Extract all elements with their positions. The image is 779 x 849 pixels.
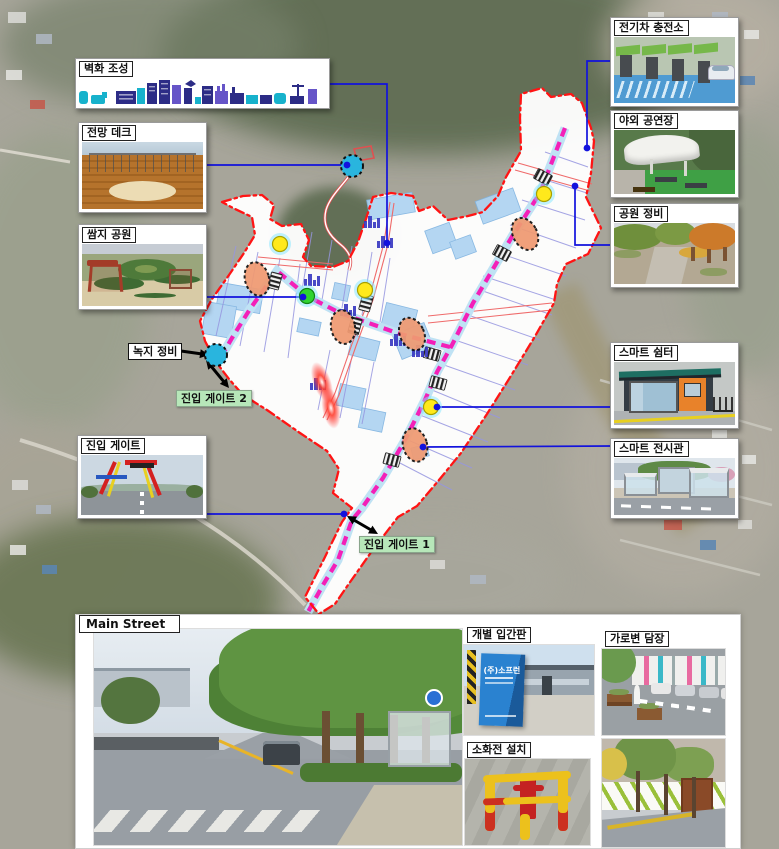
pocket-park-photo [82,244,203,306]
shape [616,81,694,98]
shape [140,492,145,514]
entry-gate-callout: 진입 게이트 [77,435,207,519]
connector-dot [384,240,391,247]
shape [96,475,128,479]
shape [650,159,653,173]
shape [467,650,476,704]
smart-shelter-title: 스마트 쉼터 [614,345,678,361]
connector-dot [341,511,348,518]
shape [263,741,300,765]
bottom-gallery-panel: Main Street 개별 입간판 [75,614,741,849]
connector-dot [344,162,351,169]
shape [93,810,331,832]
shape [629,381,679,413]
connector-dot [572,183,579,190]
shape [135,265,157,272]
deck-callout: 전망 데크 [78,122,207,213]
shape [558,776,568,831]
shape [485,677,514,679]
shape [513,785,544,791]
shape [601,748,627,780]
shape [689,223,735,250]
shape [632,656,725,685]
shape [614,170,645,194]
shape [322,711,329,763]
shape [624,473,657,496]
shape [87,260,118,266]
shape [684,383,701,396]
shape [82,244,203,254]
shape [614,250,641,259]
shape [130,463,154,468]
main-street-title: Main Street [79,615,180,633]
shape [485,715,516,717]
cyan-area-marker [205,344,227,366]
shape [713,397,732,412]
shape [388,711,451,767]
street-fence-photo-1 [601,648,726,736]
hydrant-photo [464,758,591,846]
deck-title: 전망 데크 [82,125,136,141]
connector-dot [434,404,441,411]
shape [634,685,640,704]
connector-line-smart-hall [423,446,612,447]
connector-dot [420,444,427,451]
signboard-title: 개별 입간판 [467,627,531,643]
signboard-text: (주)소프런 [484,665,521,676]
mural-title: 벽화 조성 [79,61,133,77]
outdoor-stage-callout: 야외 공연장 [610,110,739,198]
pocket-park-title: 쌈지 공원 [82,227,136,243]
shape [689,468,729,498]
smart-hall-photo [614,458,735,515]
yellow-point-marker [358,283,373,298]
street-fence-title: 가로변 담장 [605,631,669,647]
shape [109,181,177,201]
connector-dot [300,294,307,301]
mural-callout: 벽화 조성 [75,58,330,109]
main-street-photo [93,628,463,846]
smart-shelter-callout: 스마트 쉼터 [610,342,739,429]
ev-charger-title: 전기차 충전소 [614,20,689,36]
entry-gate-title: 진입 게이트 [81,438,145,454]
yellow-point-marker [537,187,552,202]
shape [681,778,713,815]
smart-hall-title: 스마트 전시관 [614,441,689,457]
park-maint-callout: 공원 정비 [610,203,739,288]
deck-photo [82,142,203,209]
yellow-point-marker [273,237,288,252]
shape [636,771,640,812]
green-maintenance-label: 녹지 정비 [128,343,182,360]
park-maint-photo [614,223,735,284]
shape [520,814,530,840]
pocket-park-callout: 쌈지 공원 [78,224,207,310]
shape [691,247,695,260]
entry-gate-photo [81,455,203,515]
site-plan-figure: 녹지 정비 진입 게이트 2 진입 게이트 1 벽화 조성 [0,0,779,849]
park-maint-title: 공원 정비 [614,206,668,222]
shape [651,683,671,693]
hydrant-title: 소화전 설치 [467,742,531,758]
signboard-photo: (주)소프런 [463,644,595,736]
shape [101,677,160,725]
outdoor-stage-title: 야외 공연장 [614,113,678,129]
gate1-label: 진입 게이트 1 [359,536,435,553]
ev-charger-photo [614,37,735,103]
shape [655,177,677,182]
shape [88,264,123,291]
street-fence-photo-2 [601,738,726,848]
shape [607,694,632,706]
gate2-label: 진입 게이트 2 [176,390,252,407]
shape [89,153,195,172]
shape [542,676,552,696]
shape [169,269,192,289]
city-skyline-icon [78,79,327,106]
smart-shelter-photo [614,362,735,425]
shape [712,66,729,71]
ev-charger-callout: 전기차 충전소 [610,17,739,107]
connector-dot [584,145,591,152]
shape [620,55,632,76]
smart-hall-callout: 스마트 전시관 [610,438,739,519]
outdoor-stage-photo [614,130,735,194]
